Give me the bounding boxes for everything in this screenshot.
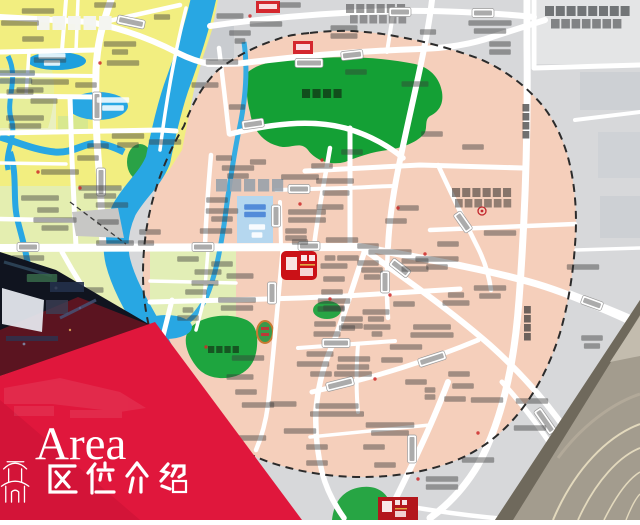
svg-text:Area: Area <box>35 418 126 470</box>
